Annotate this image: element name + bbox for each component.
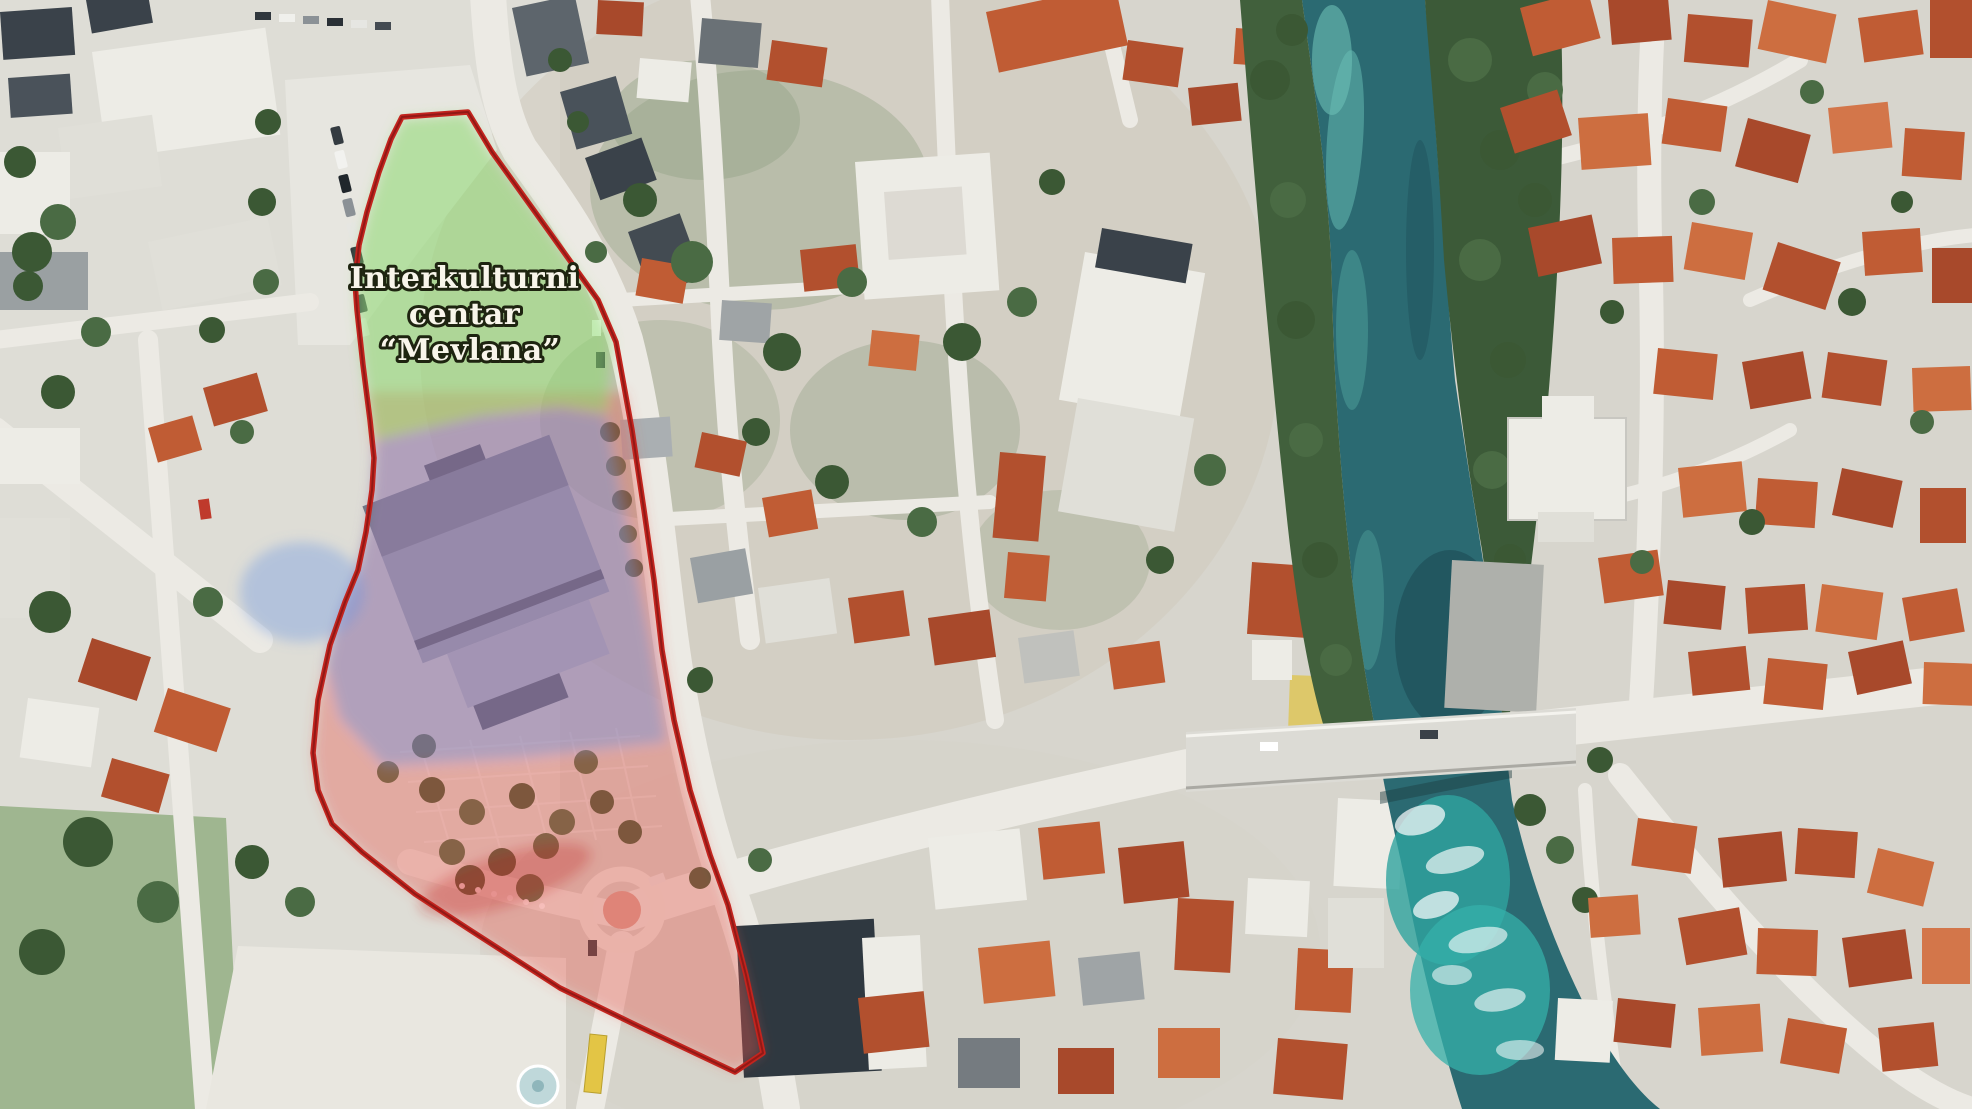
- hotel-building: [1508, 396, 1626, 542]
- site-label-line1: Interkulturni: [350, 261, 580, 296]
- plaza-pavement: [206, 946, 566, 1109]
- ruin-structure: [1444, 560, 1544, 713]
- site-label-line2: centar: [409, 297, 521, 332]
- site-label-line3: “Mevlana”: [380, 333, 561, 368]
- satellite-map: Interkulturni centar “Mevlana”: [0, 0, 1972, 1109]
- map-canvas: Interkulturni centar “Mevlana”: [0, 0, 1972, 1109]
- car-on-bridge: [1260, 742, 1278, 751]
